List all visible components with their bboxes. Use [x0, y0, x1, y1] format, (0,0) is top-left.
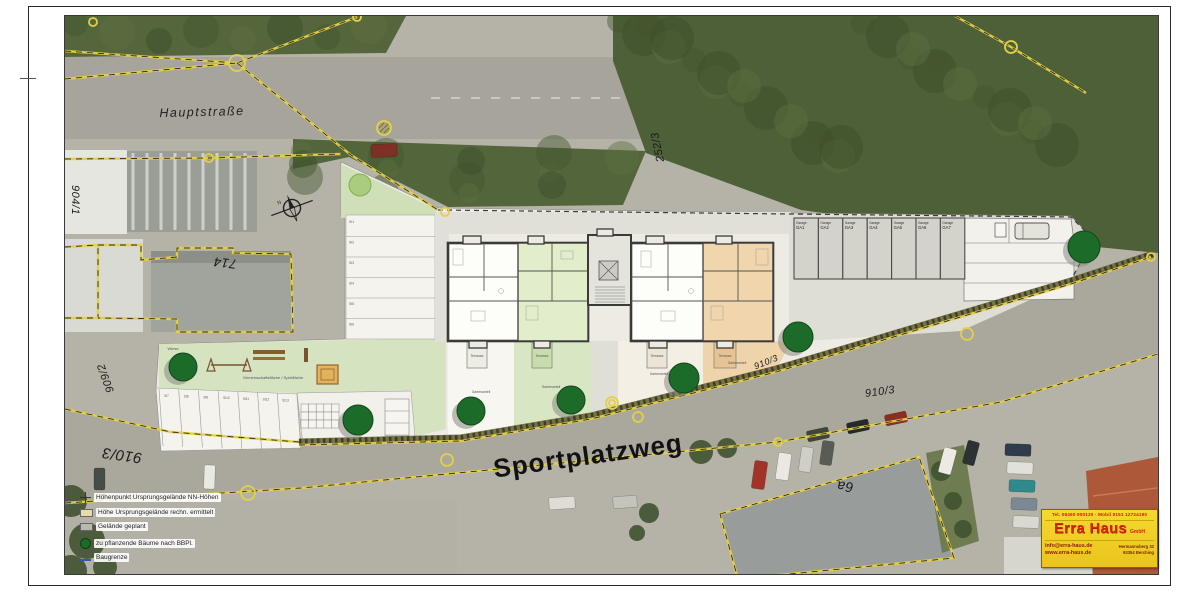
stall-number: St9	[203, 395, 208, 399]
grid-cell	[301, 404, 309, 412]
bush-icon	[639, 503, 659, 523]
plan-tiny-label: Terrasse	[650, 354, 663, 358]
plan-tiny-label: Gartenanteil	[650, 372, 669, 376]
tree-canopy-icon	[727, 69, 761, 103]
parcel-label-p714: 714	[213, 254, 238, 272]
garage-number: GA3	[845, 225, 854, 230]
tree-canopy-icon	[538, 171, 566, 199]
legend-label: Höhe Ursprungsgelände rechn. ermittelt	[96, 508, 215, 517]
tree-canopy-icon	[896, 32, 930, 66]
tree-canopy-icon	[146, 28, 172, 54]
bush-icon	[689, 440, 713, 464]
street-label-hauptstrasse: Hauptstraße	[159, 104, 245, 120]
car-icon	[204, 465, 216, 489]
planted-tree-icon	[783, 322, 813, 352]
company-address-2: 93354 Berching	[1119, 550, 1154, 556]
grid-cell	[316, 412, 324, 420]
stall-number: St3	[349, 261, 354, 265]
site-plan-graphic: GarageGA1GarageGA2GarageGA3GarageGA4Gara…	[65, 16, 1158, 574]
company-email: info@erra-haus.de	[1045, 543, 1093, 550]
grid-cell	[309, 404, 317, 412]
tree-marker-icon	[80, 538, 91, 549]
planted-tree-icon	[169, 353, 197, 381]
tree-canopy-icon	[459, 183, 479, 203]
stall-number: St2	[349, 241, 354, 245]
tree-canopy-icon	[457, 147, 485, 175]
map-legend: Höhenpunkt Ursprungsgelände NN-HöhenHöhe…	[80, 492, 260, 566]
company-phone: Tel. 08460 900130 · Mobil 0151 12724190	[1045, 512, 1154, 518]
car-icon	[549, 496, 576, 510]
bush-icon	[944, 492, 962, 510]
car-icon	[1009, 480, 1035, 493]
plan-tiny-label: Gartenanteil	[472, 390, 491, 394]
line-marker-icon	[80, 559, 91, 561]
plan-tiny-label: Terrasse	[470, 354, 483, 358]
grid-cell	[331, 420, 339, 428]
bush-icon	[629, 525, 645, 541]
tree-canopy-icon	[774, 104, 808, 138]
bush-icon	[954, 520, 972, 538]
grid-cell	[316, 404, 324, 412]
stall-number: St6	[349, 323, 354, 327]
stall-number: St8	[184, 395, 189, 399]
planted-tree-icon	[669, 363, 699, 393]
grid-cell	[324, 412, 332, 420]
stall-number: St4	[349, 282, 354, 286]
fold-mark	[20, 78, 36, 79]
car-icon	[613, 495, 638, 509]
ground-marker-icon	[80, 523, 93, 531]
legend-label: Baugrenze	[94, 553, 129, 562]
bench-icon	[253, 350, 285, 354]
sandbox-icon	[317, 365, 338, 384]
tree-canopy-icon	[536, 135, 572, 171]
planted-tree-icon	[457, 397, 485, 425]
point-marker-icon	[80, 492, 91, 503]
existing-tree-icon	[349, 174, 371, 196]
box-marker-icon	[80, 509, 93, 517]
plan-tiny-label: Gemeinschaftsfläche / Spielfläche	[243, 375, 304, 380]
parcel-label-p904: 904/1	[69, 185, 81, 215]
stall-number: St12	[263, 398, 270, 402]
stall-number: St11	[243, 397, 250, 401]
legend-label: Gelände geplant	[96, 522, 148, 531]
tree-canopy-icon	[819, 125, 863, 169]
plan-sheet: GarageGA1GarageGA2GarageGA3GarageGA4Gara…	[0, 0, 1200, 600]
car-icon	[1005, 444, 1031, 457]
plan-tiny-label: Gartenanteil	[728, 361, 747, 365]
company-name: Erra Haus	[1054, 521, 1127, 537]
company-website: www.erra-haus.de	[1045, 550, 1093, 557]
tree-canopy-icon	[650, 16, 694, 60]
legend-row: Höhe Ursprungsgelände rechn. ermittelt	[80, 507, 260, 517]
car-icon	[1007, 462, 1033, 475]
tree-canopy-icon	[943, 67, 977, 101]
company-info-box: Tel. 08460 900130 · Mobil 0151 12724190 …	[1041, 509, 1158, 568]
tree-canopy-icon	[230, 26, 256, 52]
stall-number: St5	[349, 302, 354, 306]
grid-cell	[331, 412, 339, 420]
parcel-label-p6a: 6a	[836, 478, 854, 495]
grid-cell	[301, 412, 309, 420]
parking-stalls-top-strip	[346, 215, 435, 339]
planted-tree-icon	[343, 405, 373, 435]
garage-number: GA2	[820, 225, 829, 230]
stall-number: St7	[164, 394, 169, 398]
grid-cell	[301, 420, 309, 428]
grid-cell	[331, 404, 339, 412]
plan-tiny-label: Wiese	[167, 346, 179, 351]
garage-number: GA1	[796, 225, 805, 230]
car-icon	[1011, 498, 1037, 511]
garage-number: GA7	[942, 225, 951, 230]
legend-row: Gelände geplant	[80, 521, 260, 531]
garage-number: GA6	[918, 225, 927, 230]
grid-cell	[324, 404, 332, 412]
grid-cell	[324, 420, 332, 428]
legend-label: zu pflanzende Bäume nach BBPl.	[94, 539, 195, 548]
garage-number: GA5	[894, 225, 903, 230]
planted-tree-icon	[557, 386, 585, 414]
garage-row: GarageGA1GarageGA2GarageGA3GarageGA4Gara…	[794, 218, 965, 279]
tree-canopy-icon	[287, 159, 323, 195]
plan-tiny-label: Gartenanteil	[542, 385, 561, 389]
grid-cell	[309, 412, 317, 420]
stall-number: St10	[223, 396, 230, 400]
car-icon	[1015, 223, 1049, 239]
garage-number: GA4	[869, 225, 878, 230]
car-icon	[94, 468, 105, 490]
company-address-1: Hermannsberg 32	[1119, 544, 1154, 550]
aerial-map: GarageGA1GarageGA2GarageGA3GarageGA4Gara…	[64, 15, 1159, 575]
plan-tiny-label: Terrasse	[535, 354, 548, 358]
legend-label: Höhenpunkt Ursprungsgelände NN-Höhen	[94, 493, 221, 502]
plan-tiny-label: Terrasse	[718, 354, 731, 358]
tree-canopy-icon	[378, 159, 398, 179]
legend-row: Höhenpunkt Ursprungsgelände NN-Höhen	[80, 492, 260, 503]
legend-row: zu pflanzende Bäume nach BBPl.	[80, 538, 260, 549]
grid-cell	[316, 420, 324, 428]
tree-canopy-icon	[605, 141, 639, 175]
stall-number: St13	[282, 398, 289, 402]
legend-row: Baugrenze	[80, 553, 260, 562]
company-suffix: GmbH	[1130, 529, 1145, 535]
tree-canopy-icon	[926, 50, 950, 74]
car-icon	[1013, 516, 1039, 529]
car-icon	[371, 144, 397, 158]
grid-cell	[309, 420, 317, 428]
planted-tree-icon	[1068, 231, 1100, 263]
tree-canopy-icon	[1018, 106, 1052, 140]
stall-number: St1	[349, 220, 354, 224]
